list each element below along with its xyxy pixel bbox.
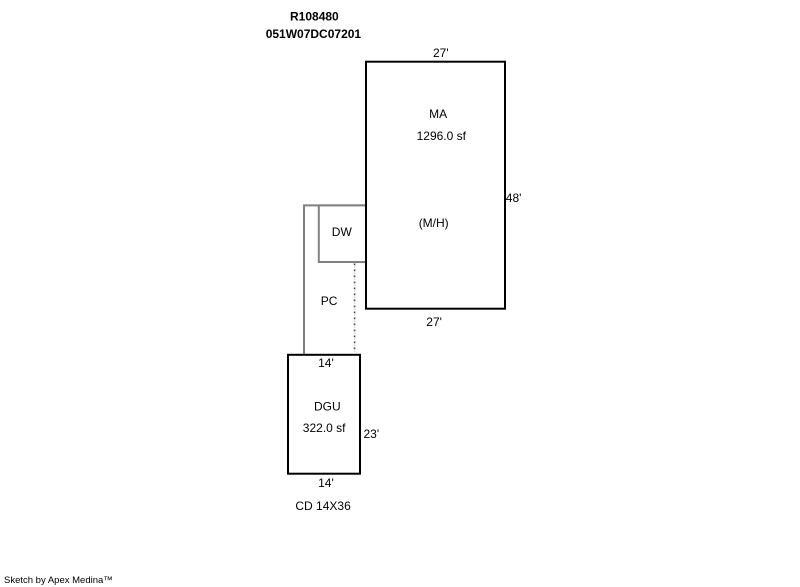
svg-text:14': 14'	[318, 356, 334, 370]
svg-text:1296.0 sf: 1296.0 sf	[417, 129, 467, 143]
svg-text:27': 27'	[433, 46, 449, 60]
svg-text:(M/H): (M/H)	[419, 216, 449, 230]
svg-text:MA: MA	[429, 107, 447, 121]
svg-text:23': 23'	[364, 427, 380, 441]
svg-text:14': 14'	[318, 476, 334, 490]
svg-text:27': 27'	[426, 315, 442, 329]
svg-text:R108480: R108480	[290, 10, 339, 24]
svg-text:DGU: DGU	[314, 400, 341, 414]
svg-text:DW: DW	[332, 225, 353, 239]
svg-text:48': 48'	[506, 191, 522, 205]
svg-text:Sketch by Apex Medina™: Sketch by Apex Medina™	[4, 575, 113, 586]
svg-text:PC: PC	[321, 294, 338, 308]
svg-text:322.0 sf: 322.0 sf	[303, 421, 346, 435]
svg-text:051W07DC07201: 051W07DC07201	[266, 27, 362, 41]
svg-text:CD 14X36: CD 14X36	[295, 499, 351, 513]
